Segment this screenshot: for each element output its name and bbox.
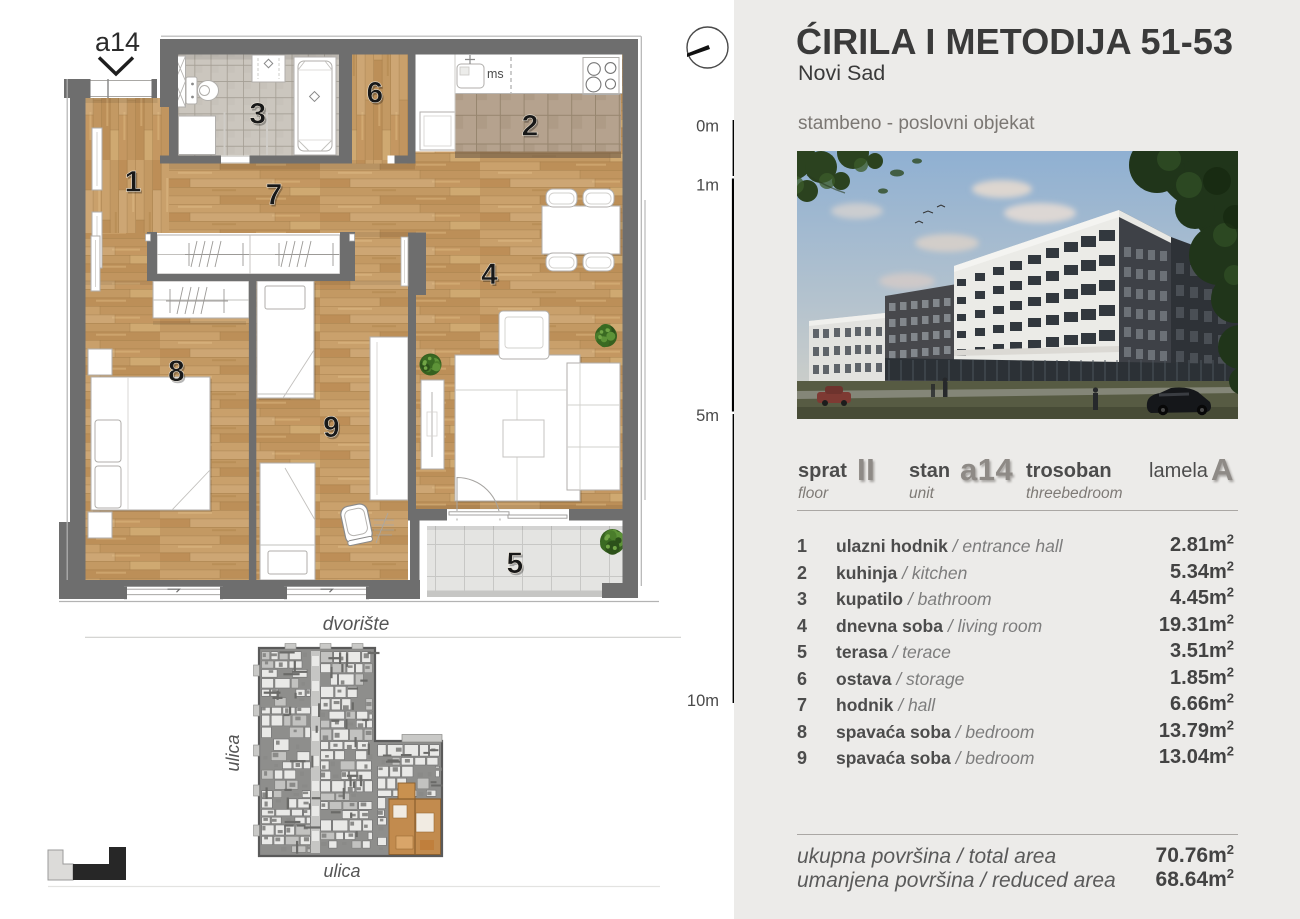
svg-text:ulica: ulica xyxy=(323,861,360,881)
svg-text:2: 2 xyxy=(522,110,539,143)
svg-text:3: 3 xyxy=(249,98,266,131)
svg-text:4: 4 xyxy=(481,258,498,291)
svg-text:5m: 5m xyxy=(696,407,719,425)
svg-text:7: 7 xyxy=(266,179,283,212)
svg-text:0m: 0m xyxy=(696,118,719,136)
svg-text:5: 5 xyxy=(506,547,523,580)
svg-text:9: 9 xyxy=(323,411,340,444)
svg-text:6: 6 xyxy=(366,77,383,110)
svg-text:dvorište: dvorište xyxy=(323,614,390,635)
svg-text:a14: a14 xyxy=(95,27,140,57)
svg-text:ulica: ulica xyxy=(223,734,243,771)
svg-text:8: 8 xyxy=(168,355,185,388)
svg-text:1m: 1m xyxy=(696,177,719,195)
svg-text:ms: ms xyxy=(487,67,504,81)
svg-text:1: 1 xyxy=(125,166,142,199)
svg-text:10m: 10m xyxy=(687,692,719,710)
